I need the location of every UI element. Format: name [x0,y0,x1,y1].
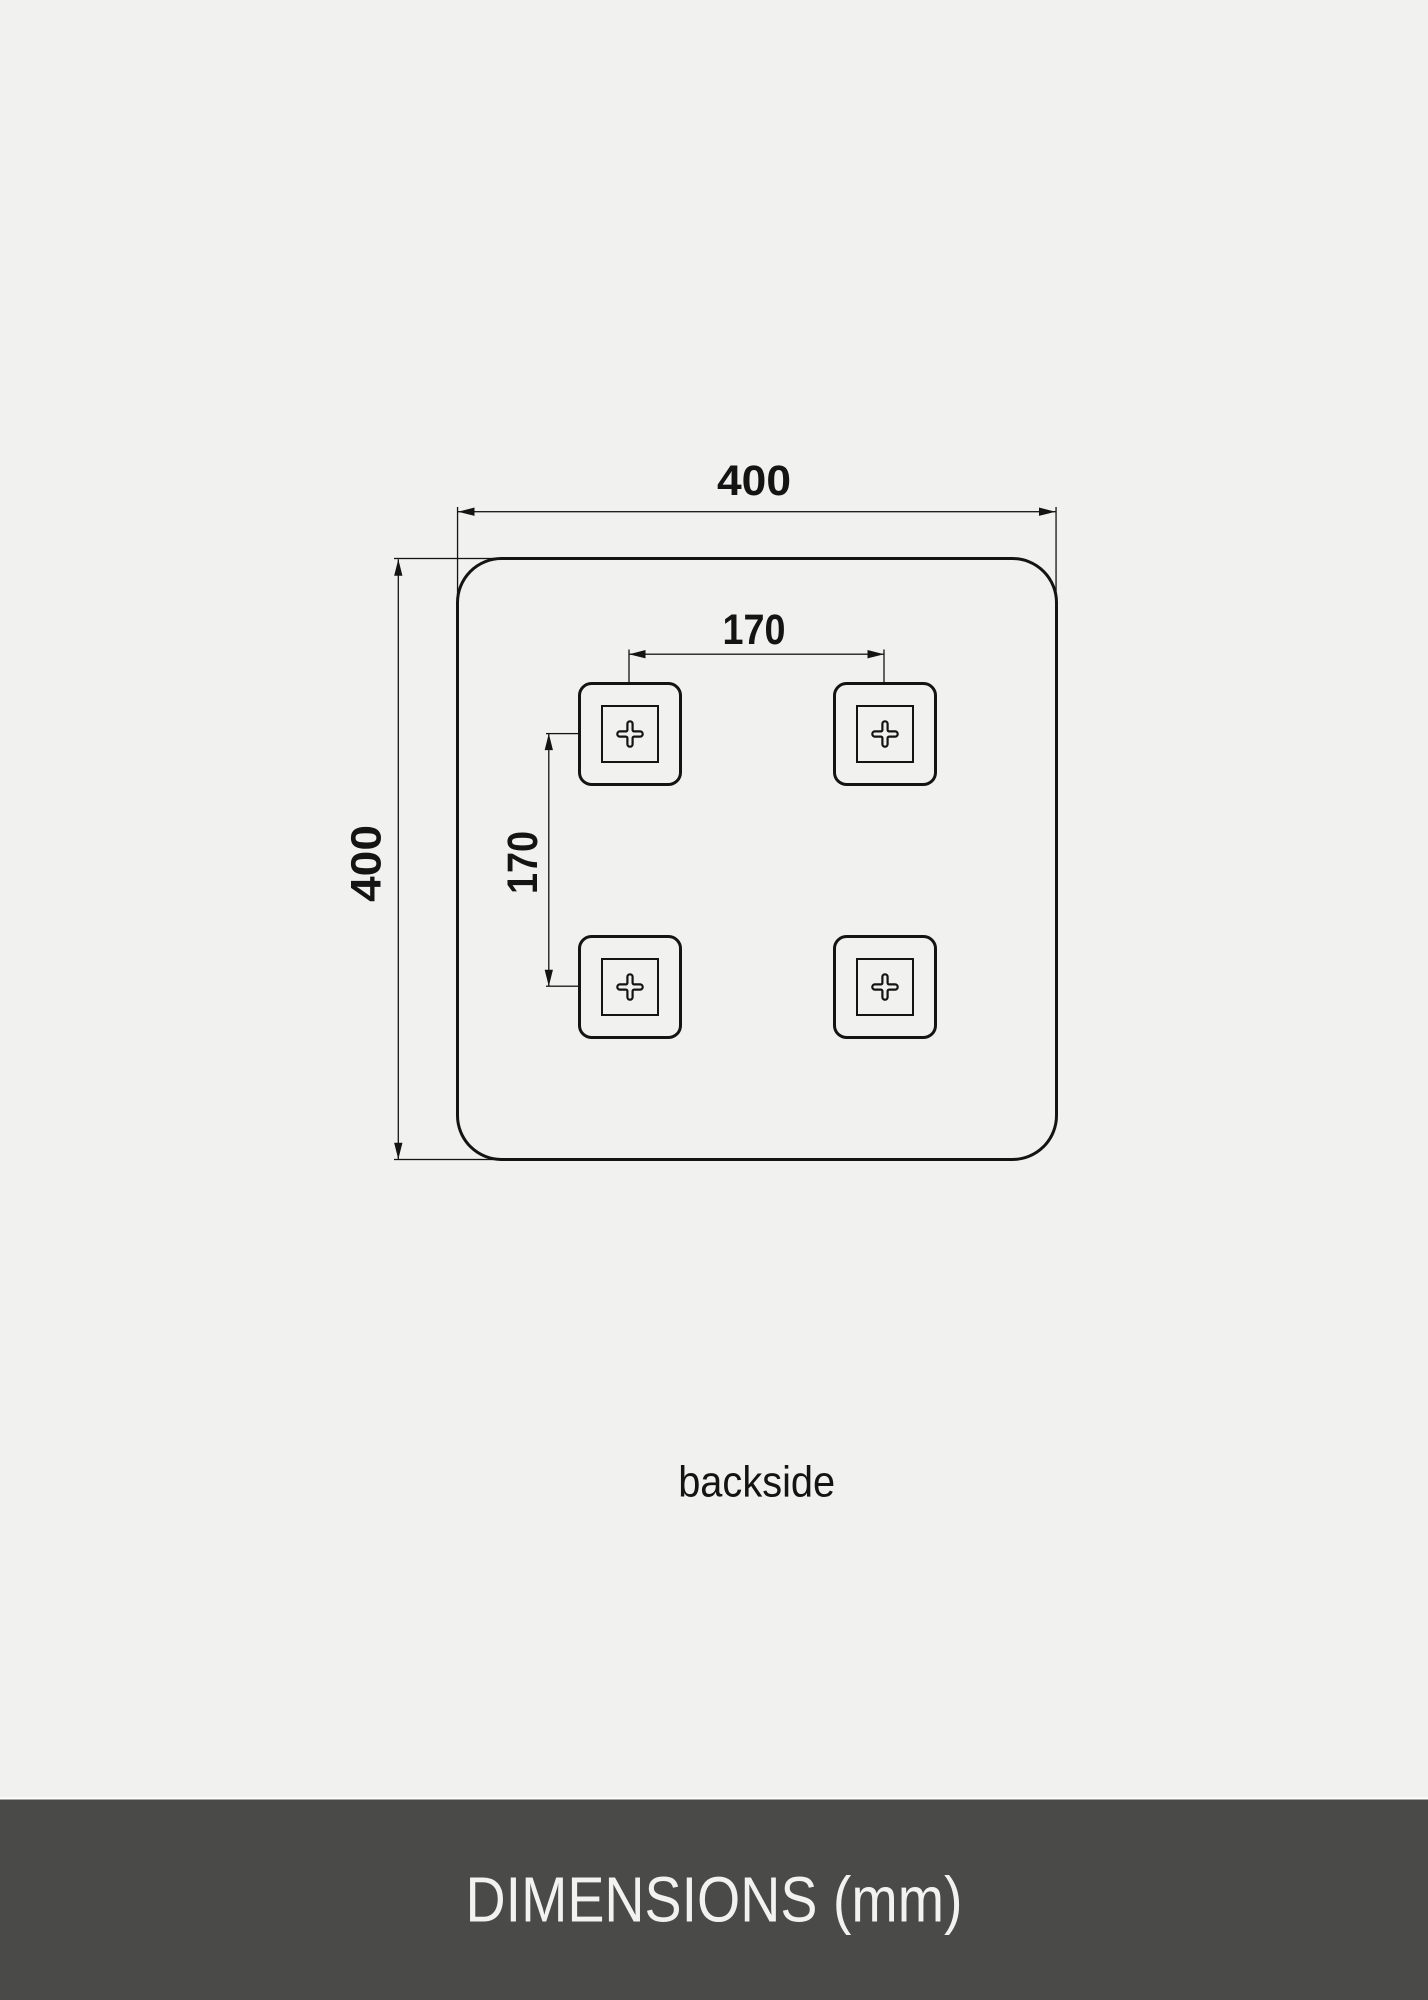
svg-text:400: 400 [717,457,791,505]
svg-text:backside: backside [678,1458,835,1507]
svg-text:170: 170 [499,831,547,894]
svg-text:170: 170 [723,606,786,654]
svg-text:400: 400 [343,825,391,902]
svg-text:DIMENSIONS (mm): DIMENSIONS (mm) [466,1863,963,1935]
